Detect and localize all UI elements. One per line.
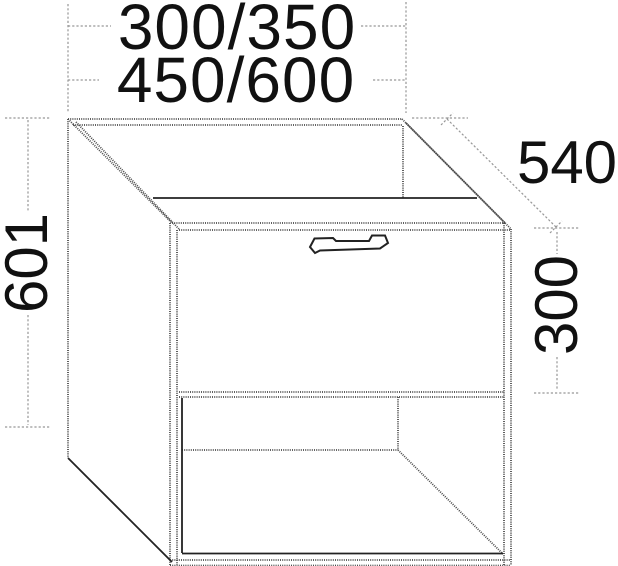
- dimension-label-height: 601: [0, 213, 57, 313]
- front-left-edge: [170, 223, 177, 565]
- drawer-handle-icon: [310, 236, 388, 254]
- right-panel-top-edge: [402, 119, 511, 229]
- dimension-label-depth: 540: [517, 133, 617, 193]
- shelf-floor-right-edge: [398, 450, 503, 554]
- back-top-edge: [68, 119, 403, 125]
- front-right-edge: [504, 223, 511, 565]
- dimension-label-width-bottom: 450/600: [117, 48, 355, 112]
- front-top-edge: [172, 223, 511, 230]
- drawer-bottom-edge: [179, 392, 504, 397]
- left-panel-bottom-edge: [68, 458, 172, 562]
- dimension-label-drawer-front-height: 300: [527, 255, 587, 355]
- left-panel-top-edge: [68, 119, 179, 229]
- cabinet-technical-drawing: 300/350 450/600 540 601 300: [0, 0, 618, 566]
- cabinet-interior-edges: [68, 198, 503, 562]
- cabinet-edges: [68, 119, 511, 566]
- front-bottom-edge: [170, 560, 511, 566]
